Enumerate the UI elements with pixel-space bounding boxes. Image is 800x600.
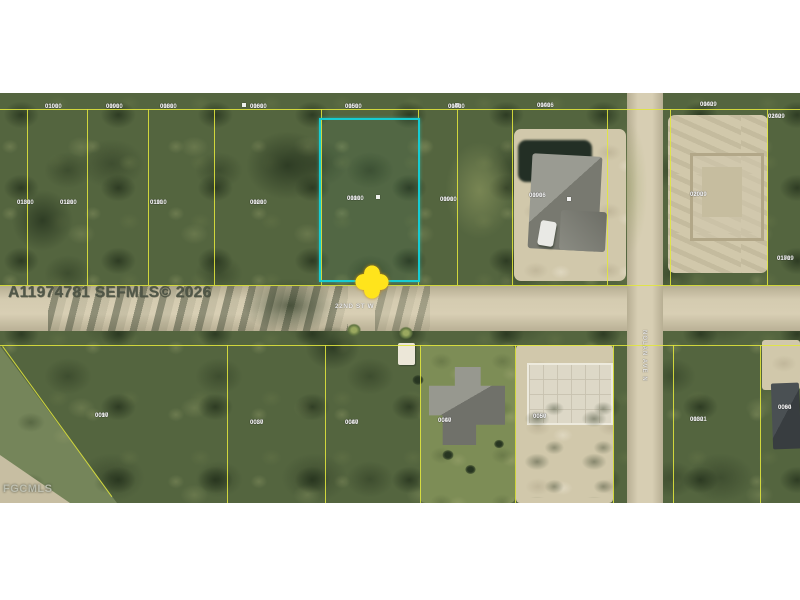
aerial-photo: 0101001000101000900101000800101000600101…	[0, 93, 800, 503]
street-label-horizontal: 22ND ST W	[335, 303, 374, 310]
listing-photo-page: 0101001000101000900101000800101000600101…	[0, 0, 800, 600]
agency-watermark: FGCMLS	[3, 483, 52, 495]
mls-watermark: A11974781 SEFMLS© 2026	[8, 284, 211, 302]
street-label-vertical: NOLAN AVE N	[641, 330, 647, 400]
